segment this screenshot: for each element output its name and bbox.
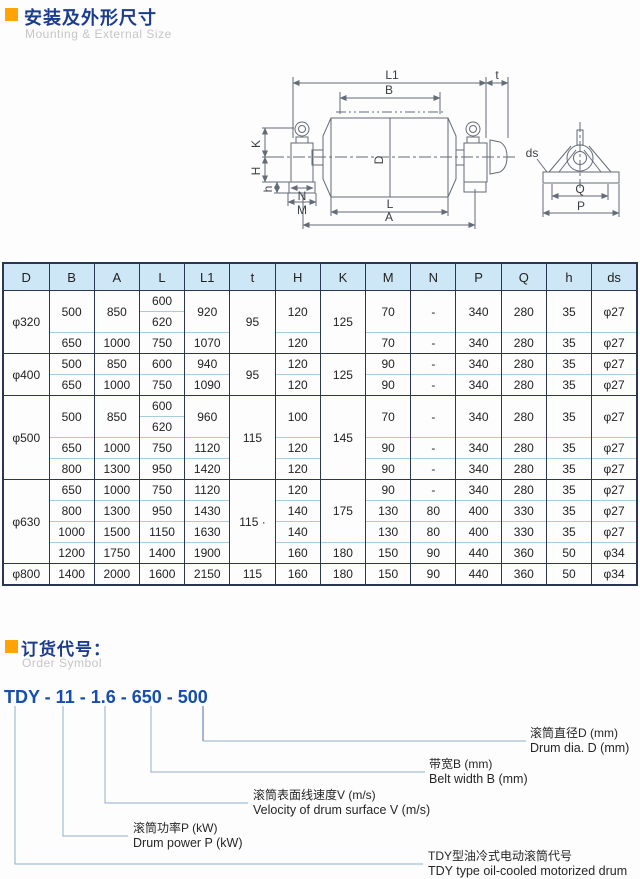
callout-label-type: TDY型油冷式电动滚筒代号 TDY type oil-cooled motori…	[428, 849, 627, 879]
callout-line-velocity	[105, 706, 248, 803]
callout-label-power: 滚筒功率P (kW) Drum power P (kW)	[133, 821, 243, 851]
callout-zh: 带宽B (mm)	[429, 757, 528, 772]
callout-en: Drum dia. D (mm)	[530, 741, 629, 756]
callout-en: Belt width B (mm)	[429, 772, 528, 787]
callout-en: TDY type oil-cooled motorized drum	[428, 864, 627, 879]
callout-en: Velocity of drum surface V (m/s)	[253, 803, 430, 818]
callout-zh: TDY型油冷式电动滚筒代号	[428, 849, 627, 864]
callout-label-belt-width: 带宽B (mm) Belt width B (mm)	[429, 757, 528, 787]
callout-line-belt-width	[151, 706, 425, 772]
callout-line-power	[63, 706, 128, 836]
callout-label-drum-dia: 滚筒直径D (mm) Drum dia. D (mm)	[530, 726, 629, 756]
callout-en: Drum power P (kW)	[133, 836, 243, 851]
document-page: { "section1": { "title_zh": "安装及外形尺寸", "…	[0, 0, 640, 874]
callout-label-velocity: 滚筒表面线速度V (m/s) Velocity of drum surface …	[253, 788, 430, 818]
callout-zh: 滚筒表面线速度V (m/s)	[253, 788, 430, 803]
callout-zh: 滚筒功率P (kW)	[133, 821, 243, 836]
callout-zh: 滚筒直径D (mm)	[530, 726, 629, 741]
